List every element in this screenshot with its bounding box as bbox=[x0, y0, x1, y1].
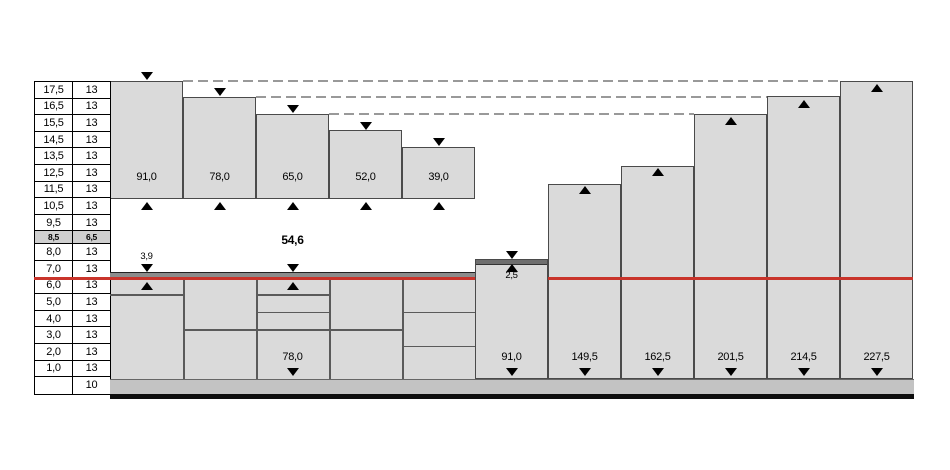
marker-up-icon bbox=[798, 100, 810, 108]
table-row: 14,513 bbox=[35, 132, 110, 149]
marker-up-icon bbox=[214, 202, 226, 210]
table-row-highlighted: 8,56,5 bbox=[35, 231, 110, 244]
marker-down-icon bbox=[141, 72, 153, 80]
subdivision-line bbox=[183, 329, 402, 331]
table-row: 17,513 bbox=[35, 82, 110, 99]
value-cell: 13 bbox=[73, 311, 110, 327]
ascending-bar-2 bbox=[621, 166, 694, 379]
marker-up-icon bbox=[287, 202, 299, 210]
depth-cell: 1,0 bbox=[35, 361, 73, 377]
red-level-line bbox=[34, 277, 475, 280]
value-cell: 13 bbox=[73, 294, 110, 310]
marker-up-icon bbox=[141, 282, 153, 290]
depth-cell: 5,0 bbox=[35, 294, 73, 310]
bar-value-label: 78,0 bbox=[183, 171, 256, 183]
marker-up-icon bbox=[141, 202, 153, 210]
depth-cell: 16,5 bbox=[35, 99, 73, 115]
value-cell: 13 bbox=[73, 132, 110, 148]
depth-cell: 10,5 bbox=[35, 198, 73, 214]
table-row: 4,013 bbox=[35, 311, 110, 328]
bar-value-label: 149,5 bbox=[548, 351, 621, 363]
value-cell: 6,5 bbox=[73, 231, 110, 243]
bar-value-label: 65,0 bbox=[256, 171, 329, 183]
depth-cell: 15,5 bbox=[35, 115, 73, 131]
reference-dashed-line bbox=[256, 96, 767, 98]
subdivision-line bbox=[256, 294, 329, 296]
table-row: 9,513 bbox=[35, 215, 110, 232]
depth-cell: 2,0 bbox=[35, 344, 73, 360]
subdivision-line bbox=[402, 346, 475, 348]
depth-cell: 14,5 bbox=[35, 132, 73, 148]
depth-cell: 4,0 bbox=[35, 311, 73, 327]
table-row: 8,013 bbox=[35, 244, 110, 261]
marker-down-icon bbox=[652, 368, 664, 376]
bar-value-label: 52,0 bbox=[329, 171, 402, 183]
value-cell: 13 bbox=[73, 99, 110, 115]
depth-cell: 12,5 bbox=[35, 165, 73, 181]
value-cell: 13 bbox=[73, 261, 110, 277]
depth-cell: 11,5 bbox=[35, 182, 73, 198]
subdivision-line bbox=[402, 312, 475, 314]
table-row: 13,513 bbox=[35, 148, 110, 165]
subdivision-line bbox=[110, 294, 183, 296]
ascending-bar-1 bbox=[548, 184, 621, 379]
value-cell: 13 bbox=[73, 327, 110, 343]
bar-value-label: 214,5 bbox=[767, 351, 840, 363]
marker-up-icon bbox=[506, 264, 518, 272]
depth-cell: 17,5 bbox=[35, 82, 73, 98]
marker-up-icon bbox=[871, 84, 883, 92]
marker-up-icon bbox=[433, 202, 445, 210]
table-row: 16,513 bbox=[35, 99, 110, 116]
descending-bar-4 bbox=[329, 130, 402, 199]
value-cell: 13 bbox=[73, 344, 110, 360]
marker-down-icon bbox=[214, 88, 226, 96]
bar-value-label: 39,0 bbox=[402, 171, 475, 183]
marker-up-icon bbox=[652, 168, 664, 176]
table-row: 11,513 bbox=[35, 182, 110, 199]
depth-cell: 3,0 bbox=[35, 327, 73, 343]
marker-up-icon bbox=[360, 202, 372, 210]
marker-down-icon bbox=[141, 264, 153, 272]
marker-down-icon bbox=[287, 105, 299, 113]
bar-value-label: 91,0 bbox=[475, 351, 548, 363]
marker-down-icon bbox=[506, 368, 518, 376]
marker-down-icon bbox=[506, 251, 518, 259]
marker-down-icon bbox=[287, 368, 299, 376]
bar-value-label: 78,0 bbox=[256, 351, 329, 363]
value-cell: 13 bbox=[73, 182, 110, 198]
table-row: 15,513 bbox=[35, 115, 110, 132]
value-cell: 13 bbox=[73, 148, 110, 164]
table-row: 1,013 bbox=[35, 361, 110, 378]
bar-value-label: 227,5 bbox=[840, 351, 913, 363]
marker-down-icon bbox=[798, 368, 810, 376]
baseline bbox=[110, 394, 914, 399]
table-row: 10,513 bbox=[35, 198, 110, 215]
value-cell: 13 bbox=[73, 215, 110, 231]
table-row: 5,013 bbox=[35, 294, 110, 311]
depth-cell: 8,0 bbox=[35, 244, 73, 260]
bar-value-label: 91,0 bbox=[110, 171, 183, 183]
value-cell: 13 bbox=[73, 244, 110, 260]
table-row: 7,013 bbox=[35, 261, 110, 278]
stair-profile-diagram: 17,513 16,513 15,513 14,513 13,513 12,51… bbox=[0, 0, 950, 470]
marker-down-icon bbox=[871, 368, 883, 376]
annotation: 3,9 bbox=[110, 251, 183, 262]
marker-down-icon bbox=[360, 122, 372, 130]
depth-cell: 7,0 bbox=[35, 261, 73, 277]
bar-value-label: 201,5 bbox=[694, 351, 767, 363]
marker-down-icon bbox=[287, 264, 299, 272]
value-cell: 13 bbox=[73, 165, 110, 181]
depth-cell: 9,5 bbox=[35, 215, 73, 231]
depth-cell bbox=[35, 377, 73, 394]
reference-dashed-line bbox=[329, 113, 694, 115]
bottom-band bbox=[110, 379, 914, 394]
value-cell: 13 bbox=[73, 82, 110, 98]
red-level-line bbox=[548, 277, 913, 280]
marker-up-icon bbox=[579, 186, 591, 194]
depth-cell: 8,5 bbox=[35, 231, 73, 243]
marker-up-icon bbox=[287, 282, 299, 290]
table-row: 12,513 bbox=[35, 165, 110, 182]
subdivision-line bbox=[256, 312, 329, 314]
table-row: 2,013 bbox=[35, 344, 110, 361]
table-row: 3,013 bbox=[35, 327, 110, 344]
value-cell: 13 bbox=[73, 115, 110, 131]
ascending-bar-5 bbox=[840, 81, 913, 380]
marker-down-icon bbox=[433, 138, 445, 146]
ascending-bar-3 bbox=[694, 114, 767, 379]
annotation-bold: 54,6 bbox=[256, 233, 329, 247]
descending-bar-2 bbox=[183, 97, 256, 199]
bar-value-label: 162,5 bbox=[621, 351, 694, 363]
marker-down-icon bbox=[579, 368, 591, 376]
value-cell: 13 bbox=[73, 198, 110, 214]
depth-cell: 13,5 bbox=[35, 148, 73, 164]
depth-table: 17,513 16,513 15,513 14,513 13,513 12,51… bbox=[34, 81, 111, 395]
ascending-bar-4 bbox=[767, 96, 840, 379]
marker-up-icon bbox=[725, 117, 737, 125]
value-cell: 13 bbox=[73, 361, 110, 377]
table-row: 6,013 bbox=[35, 278, 110, 295]
table-row: 10 bbox=[35, 377, 110, 394]
descending-bar-3 bbox=[256, 114, 329, 199]
marker-down-icon bbox=[725, 368, 737, 376]
value-cell: 10 bbox=[73, 377, 110, 394]
reference-dashed-line bbox=[183, 80, 840, 82]
